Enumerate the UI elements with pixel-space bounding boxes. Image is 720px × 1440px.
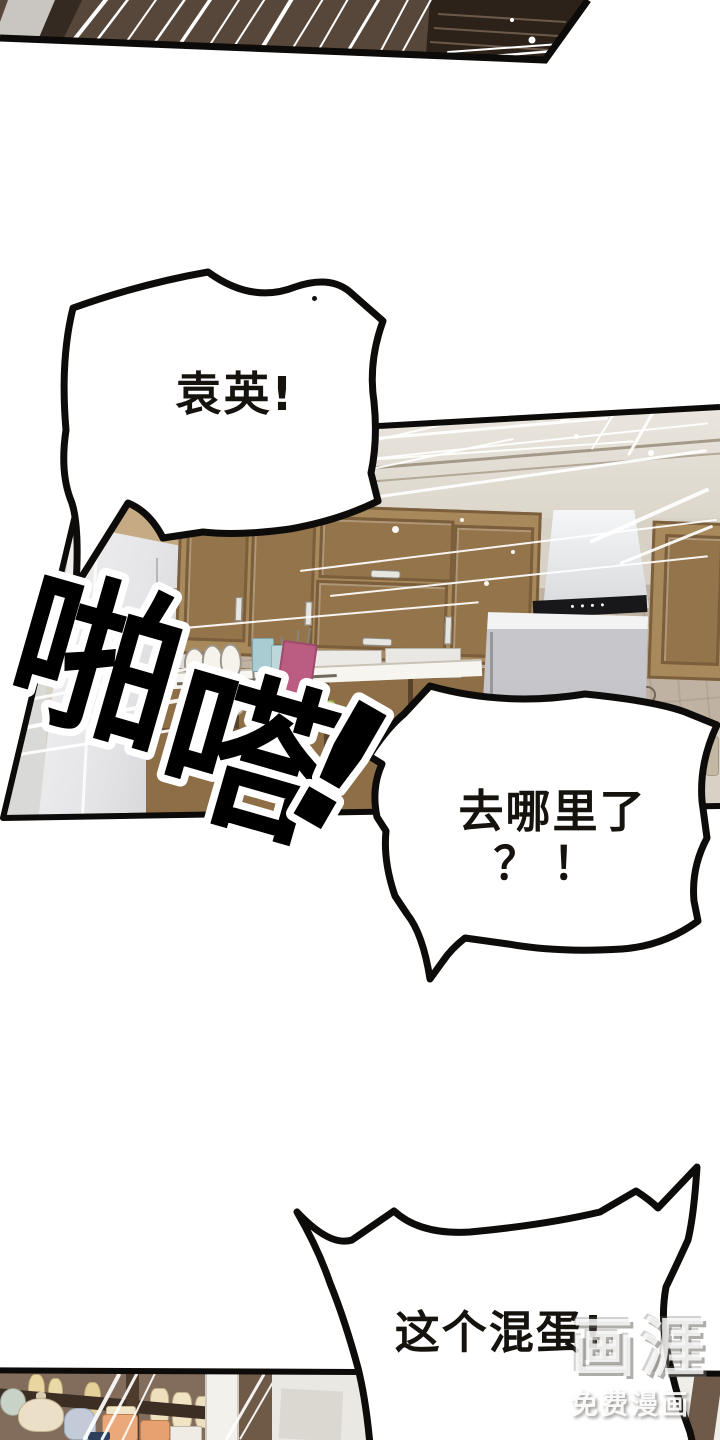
watermark-logo: 画涯: [556, 1297, 720, 1381]
watermark-caption: 免费漫画: [556, 1383, 706, 1422]
comic-page: 袁英! 去哪里了 ？！ 这个混蛋! 啪 嗒 ! 画涯 免费漫画: [0, 0, 720, 1440]
sfx-pata: 啪 嗒 !: [0, 545, 430, 875]
